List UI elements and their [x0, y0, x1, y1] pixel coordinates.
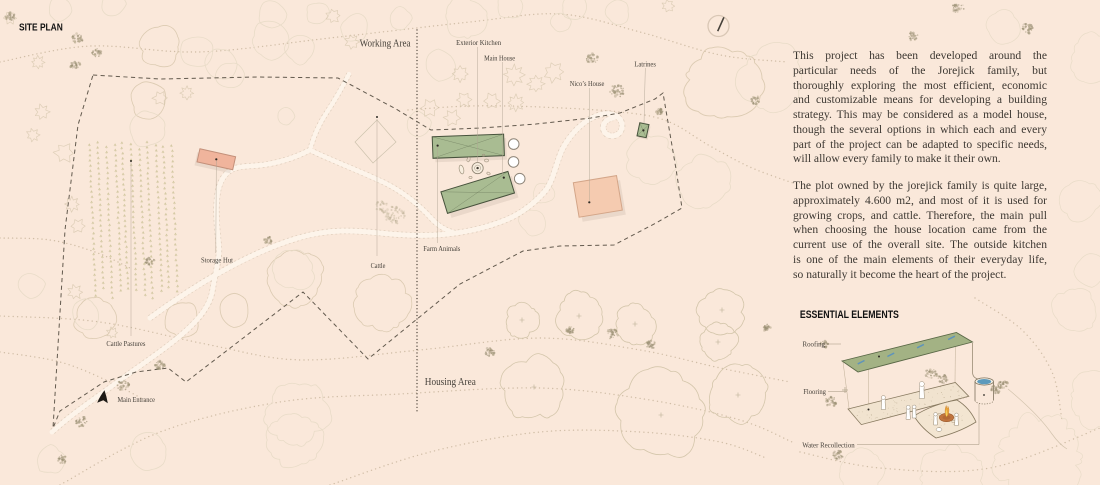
svg-text:Exterior Kitchen: Exterior Kitchen: [456, 39, 501, 47]
svg-text:Farm Animals: Farm Animals: [423, 245, 460, 253]
svg-text:Storage Hut: Storage Hut: [201, 256, 233, 264]
svg-text:SITE PLAN: SITE PLAN: [19, 22, 63, 33]
svg-text:Working Area: Working Area: [360, 39, 411, 50]
svg-text:Latrines: Latrines: [634, 60, 656, 68]
svg-text:Roofing: Roofing: [803, 339, 826, 348]
svg-text:Water Recollection: Water Recollection: [802, 441, 855, 450]
svg-text:Cattle: Cattle: [371, 262, 386, 270]
svg-text:ESSENTIAL ELEMENTS: ESSENTIAL ELEMENTS: [800, 309, 899, 321]
svg-text:Housing Area: Housing Area: [425, 377, 476, 388]
svg-text:Flooring: Flooring: [803, 387, 826, 396]
svg-text:Main House: Main House: [484, 54, 515, 62]
svg-text:Main Entrance: Main Entrance: [118, 396, 156, 404]
svg-text:Nico’s House: Nico’s House: [570, 80, 605, 88]
svg-text:Cattle Pastures: Cattle Pastures: [106, 340, 145, 348]
